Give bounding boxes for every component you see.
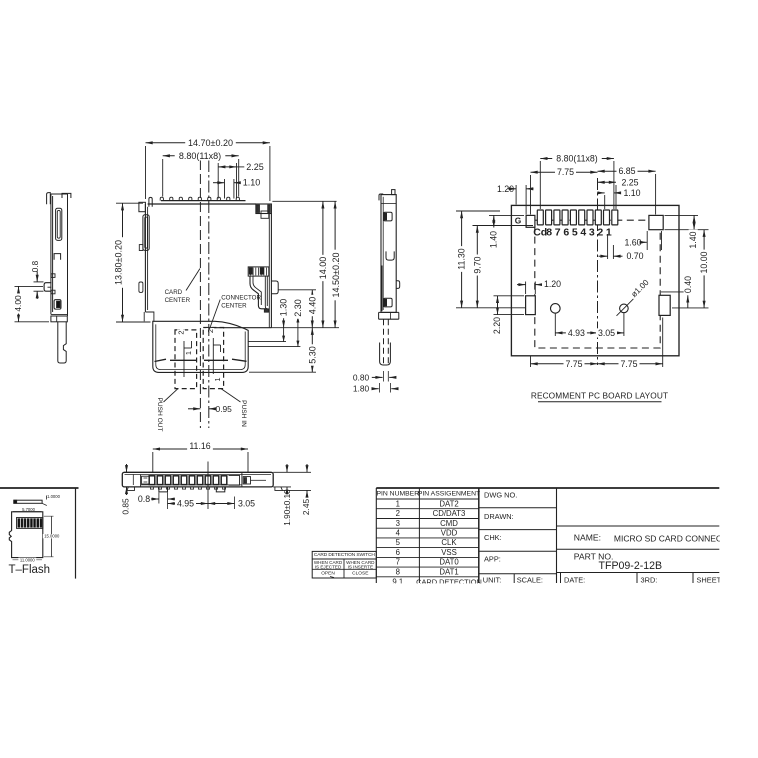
svg-text:1.80: 1.80 (353, 384, 370, 394)
svg-text:CD/DAT3: CD/DAT3 (433, 509, 466, 518)
svg-text:DRAWN:: DRAWN: (484, 512, 514, 521)
svg-text:CENTER: CENTER (165, 297, 191, 304)
svg-text:3: 3 (396, 519, 400, 528)
svg-text:1: 1 (213, 377, 222, 381)
svg-text:7.75: 7.75 (557, 167, 574, 177)
svg-text:CLOSE: CLOSE (352, 570, 368, 576)
svg-text:9.70: 9.70 (472, 256, 482, 273)
svg-text:8.80(11x8): 8.80(11x8) (179, 151, 221, 161)
svg-text:APP:: APP: (484, 555, 501, 564)
svg-text:DATE:: DATE: (564, 575, 585, 584)
svg-text:1.30: 1.30 (279, 299, 289, 317)
svg-text:1.60: 1.60 (624, 237, 641, 247)
svg-text:1: 1 (184, 351, 193, 355)
svg-text:11.30: 11.30 (457, 248, 467, 269)
svg-text:SCALE:: SCALE: (517, 575, 543, 584)
svg-text:0.70: 0.70 (626, 251, 643, 261)
svg-text:CMD: CMD (440, 519, 458, 528)
svg-text:VDD: VDD (441, 529, 458, 538)
svg-text:0.8: 0.8 (138, 494, 150, 504)
svg-text:4.95: 4.95 (177, 499, 194, 509)
svg-text:CLK: CLK (441, 538, 457, 547)
svg-text:2: 2 (597, 227, 603, 239)
svg-text:1.10: 1.10 (623, 188, 640, 198)
svg-text:5: 5 (396, 538, 401, 547)
svg-text:14.50±0.20: 14.50±0.20 (331, 253, 341, 298)
svg-text:6.85: 6.85 (618, 166, 635, 176)
svg-text:DWG NO.: DWG NO. (484, 491, 517, 500)
svg-text:15.0000: 15.0000 (44, 534, 60, 539)
svg-text:DAT1: DAT1 (439, 567, 458, 576)
svg-text:11.0000: 11.0000 (20, 557, 35, 562)
svg-text:1.40: 1.40 (688, 231, 698, 248)
svg-text:1.20: 1.20 (544, 279, 561, 289)
svg-text:3RD:: 3RD: (641, 575, 658, 584)
svg-text:0.95: 0.95 (216, 404, 233, 414)
svg-text:PUSH OUT: PUSH OUT (156, 397, 163, 431)
svg-text:1: 1 (606, 227, 612, 239)
svg-text:13.80±0.20: 13.80±0.20 (113, 240, 123, 285)
svg-text:2.30: 2.30 (293, 299, 303, 317)
svg-text:2.25: 2.25 (621, 177, 638, 187)
svg-text:1.90±0.10: 1.90±0.10 (283, 489, 292, 526)
svg-text:2: 2 (206, 329, 215, 333)
svg-text:PUSH IN: PUSH IN (240, 400, 247, 427)
svg-text:4.00: 4.00 (13, 295, 23, 312)
svg-text:CHK:: CHK: (484, 533, 502, 542)
svg-text:4: 4 (396, 529, 401, 538)
svg-text:IS EJECTED: IS EJECTED (315, 564, 342, 569)
svg-text:7.75: 7.75 (565, 359, 582, 369)
svg-text:PIN ASSIGENMENT: PIN ASSIGENMENT (418, 491, 480, 498)
svg-text:DAT2: DAT2 (439, 499, 458, 508)
svg-text:8.80(11x8): 8.80(11x8) (556, 154, 597, 164)
svg-text:0.85: 0.85 (120, 498, 130, 515)
svg-text:VSS: VSS (441, 548, 457, 557)
svg-text:CARD: CARD (165, 289, 183, 296)
svg-text:14.00: 14.00 (318, 257, 328, 280)
svg-text:PIN NUMBER: PIN NUMBER (376, 491, 419, 498)
svg-text:14.70±0.20: 14.70±0.20 (188, 138, 233, 148)
svg-text:5: 5 (572, 227, 578, 239)
svg-text:2: 2 (396, 509, 400, 518)
svg-text:7: 7 (555, 227, 561, 239)
svg-text:DAT0: DAT0 (439, 558, 459, 567)
svg-text:1: 1 (396, 499, 400, 508)
svg-text:1.10: 1.10 (243, 178, 261, 188)
svg-text:3.05: 3.05 (598, 328, 615, 338)
svg-text:0.8: 0.8 (31, 260, 40, 272)
svg-text:7: 7 (396, 558, 400, 567)
svg-text:IS INSERTE: IS INSERTE (348, 564, 373, 569)
svg-text:2.25: 2.25 (246, 162, 264, 172)
svg-text:OPEN: OPEN (321, 570, 335, 576)
svg-text:4: 4 (580, 227, 586, 239)
svg-text:4.93: 4.93 (568, 328, 585, 338)
svg-text:G: G (515, 216, 522, 226)
svg-text:1.40: 1.40 (488, 231, 498, 248)
svg-text:TFP09-2-12B: TFP09-2-12B (599, 560, 663, 572)
svg-text:UNIT:: UNIT: (483, 575, 501, 584)
svg-text:2.20: 2.20 (492, 317, 502, 334)
svg-text:6: 6 (396, 548, 400, 557)
svg-text:6: 6 (563, 227, 569, 239)
svg-text:0.80: 0.80 (353, 372, 370, 382)
svg-text:11.16: 11.16 (189, 441, 210, 451)
svg-text:0.40: 0.40 (683, 276, 693, 293)
svg-text:3: 3 (589, 227, 595, 239)
svg-text:CARD DETECTION SWITCH: CARD DETECTION SWITCH (314, 552, 375, 558)
svg-text:Cd: Cd (533, 227, 547, 239)
svg-text:CONNECTOR: CONNECTOR (221, 294, 261, 301)
svg-text:SHEET: SHEET (697, 575, 722, 584)
svg-text:CENTER: CENTER (221, 302, 247, 309)
svg-text:4.40: 4.40 (307, 297, 317, 315)
svg-text:8: 8 (396, 567, 400, 576)
svg-text:1.0000: 1.0000 (47, 494, 60, 499)
svg-text:8: 8 (546, 227, 552, 239)
svg-text:2.45: 2.45 (301, 499, 311, 516)
svg-text:10.00: 10.00 (699, 251, 709, 273)
svg-text:T–Flash: T–Flash (9, 564, 51, 576)
svg-text:3.05: 3.05 (238, 499, 255, 509)
svg-text:2: 2 (177, 330, 186, 334)
svg-text:RECOMMENT PC BOARD LAYOUT: RECOMMENT PC BOARD LAYOUT (531, 391, 668, 401)
svg-text:5.30: 5.30 (307, 346, 317, 364)
svg-text:1.20: 1.20 (497, 184, 514, 194)
svg-text:NAME:: NAME: (574, 533, 601, 543)
svg-text:7.75: 7.75 (620, 359, 637, 369)
